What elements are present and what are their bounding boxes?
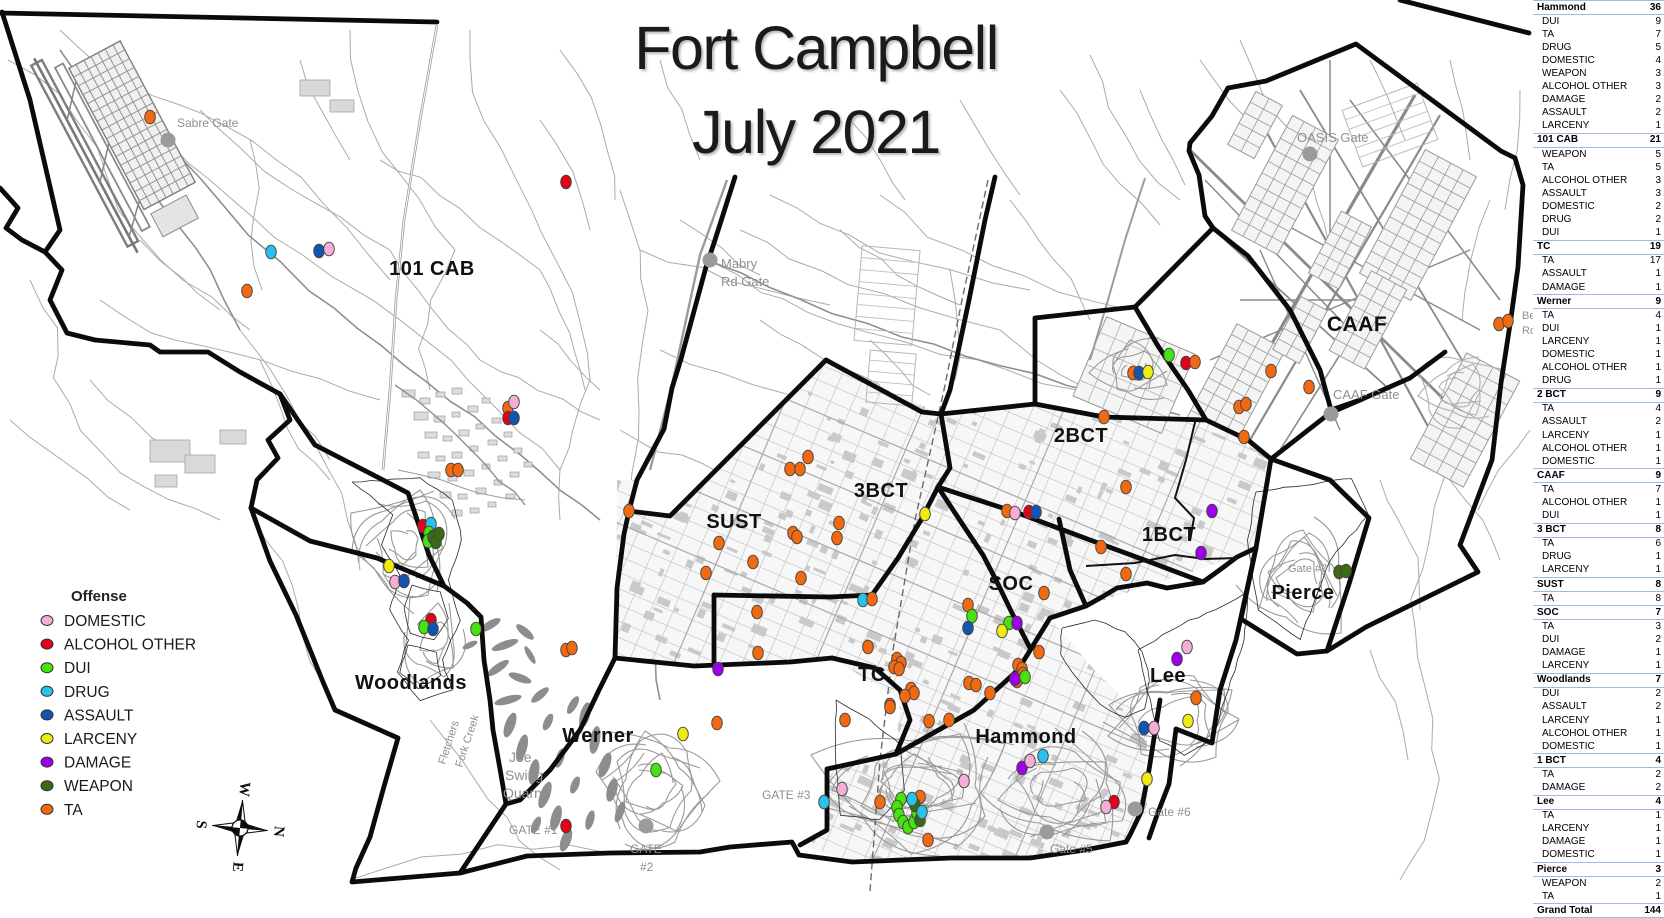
svg-text:DUI: DUI [64, 660, 91, 677]
svg-text:W: W [235, 781, 252, 797]
svg-text:Offense: Offense [71, 588, 127, 605]
svg-text:N: N [270, 825, 287, 837]
svg-text:Be: Be [1522, 310, 1533, 322]
svg-text:101 CAB: 101 CAB [389, 258, 475, 280]
svg-text:CAAF Gate: CAAF Gate [1333, 387, 1399, 402]
svg-text:Rd Gate: Rd Gate [721, 274, 769, 289]
svg-text:Mabry: Mabry [721, 256, 758, 271]
svg-text:TC: TC [858, 664, 886, 686]
svg-text:CAAF: CAAF [1327, 313, 1387, 336]
svg-text:Pierce: Pierce [1271, 582, 1334, 604]
svg-text:3BCT: 3BCT [854, 480, 908, 502]
svg-text:1BCT: 1BCT [1142, 524, 1196, 546]
svg-text:GATE #1: GATE #1 [509, 823, 558, 837]
svg-text:ASSAULT: ASSAULT [64, 707, 134, 724]
svg-text:Lee: Lee [1150, 665, 1186, 687]
svg-text:Woodlands: Woodlands [355, 672, 467, 694]
svg-text:GATE: GATE [630, 842, 662, 856]
svg-text:OASIS Gate: OASIS Gate [1297, 130, 1369, 145]
svg-text:SUST: SUST [706, 511, 761, 533]
svg-text:GATE #3: GATE #3 [762, 788, 811, 802]
svg-text:SOC: SOC [989, 573, 1034, 595]
svg-text:Joe: Joe [509, 749, 532, 765]
svg-text:Sabre Gate: Sabre Gate [177, 116, 239, 130]
svg-text:2BCT: 2BCT [1054, 425, 1108, 447]
svg-text:DRUG: DRUG [64, 684, 110, 701]
svg-text:TA: TA [64, 802, 83, 819]
svg-text:Swing: Swing [505, 767, 543, 783]
svg-text:July 2021: July 2021 [692, 98, 940, 166]
svg-text:DAMAGE: DAMAGE [64, 755, 131, 772]
svg-text:Fort Campbell: Fort Campbell [634, 14, 998, 82]
svg-text:Hammond: Hammond [975, 726, 1076, 748]
svg-text:#2: #2 [640, 860, 654, 874]
svg-text:WEAPON: WEAPON [64, 778, 133, 795]
svg-text:S: S [192, 820, 209, 830]
svg-text:Gate #6: Gate #6 [1148, 805, 1191, 819]
svg-text:Gate #7: Gate #7 [1288, 563, 1327, 575]
svg-text:Rd: Rd [1522, 325, 1533, 337]
svg-text:E: E [229, 861, 246, 872]
svg-text:Werner: Werner [562, 725, 634, 747]
svg-text:Gate #5: Gate #5 [1050, 842, 1093, 856]
svg-text:DOMESTIC: DOMESTIC [64, 613, 146, 630]
svg-text:LARCENY: LARCENY [64, 731, 137, 748]
svg-text:ALCOHOL OTHER: ALCOHOL OTHER [64, 637, 196, 654]
svg-text:Quarry: Quarry [503, 785, 546, 801]
